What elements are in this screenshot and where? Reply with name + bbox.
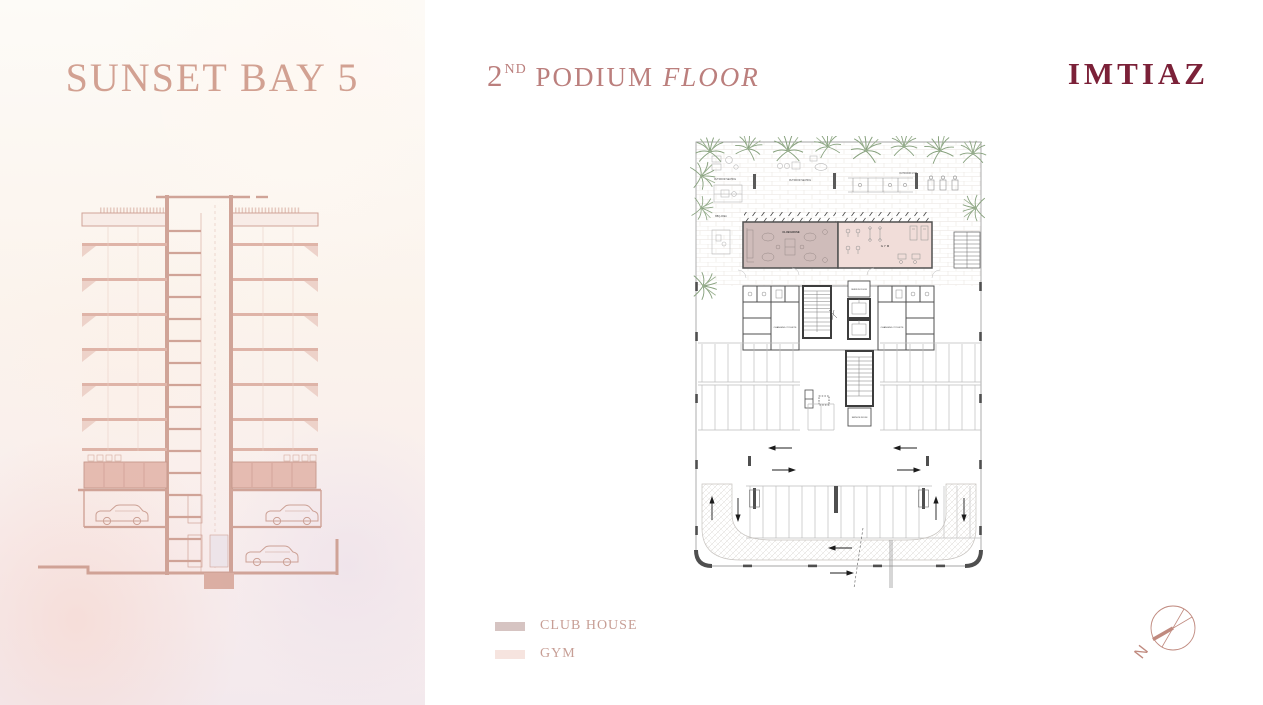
floor-plan: OUTDOOR SEATING OUTDOOR SEATING OUTDOOR … bbox=[688, 136, 992, 598]
project-title: SUNSET BAY 5 bbox=[0, 54, 425, 101]
left-sky-panel: SUNSET BAY 5 bbox=[0, 0, 425, 705]
podium-highlight-band bbox=[84, 455, 316, 488]
label-outdoor-seating-center: OUTDOOR SEATING bbox=[789, 179, 812, 182]
drive-aisle-arrows bbox=[768, 445, 921, 472]
club-house-room: CLUB HOUSE bbox=[743, 222, 838, 268]
slide: SUNSET BAY 5 bbox=[0, 0, 1263, 705]
legend-item-club-house: CLUB HOUSE bbox=[495, 617, 638, 635]
label-service-room-top: SERVICE ROOM bbox=[851, 289, 867, 291]
core-band: CHANGING / TOILETS CHANGING / TOILETS bbox=[743, 281, 934, 426]
pergola-hatch-clubhouse bbox=[744, 212, 836, 222]
floor-word-italic: FLOOR bbox=[663, 62, 760, 92]
brand-logo: IMTIAZ bbox=[1068, 56, 1209, 92]
club-house-swatch bbox=[495, 622, 525, 631]
gym-label: GYM bbox=[540, 646, 576, 662]
compass: N bbox=[1125, 596, 1215, 681]
car-left bbox=[96, 505, 148, 525]
legend: CLUB HOUSE GYM bbox=[495, 617, 638, 673]
ramp-band bbox=[702, 484, 976, 560]
floor-slabs bbox=[82, 226, 318, 451]
building-section bbox=[38, 195, 337, 589]
gym-swatch bbox=[495, 650, 525, 659]
club-house-label: CLUB HOUSE bbox=[540, 618, 638, 634]
label-changing-toilets-right: CHANGING / TOILETS bbox=[881, 326, 904, 329]
floor-heading: 2ND PODIUM FLOOR bbox=[487, 58, 760, 94]
gym-room: G Y M bbox=[838, 222, 932, 268]
parking-middle bbox=[698, 343, 981, 430]
label-outdoor-gym: OUTDOOR GYM bbox=[899, 173, 917, 175]
pergola-hatch-gym bbox=[840, 212, 932, 222]
floor-word: PODIUM bbox=[535, 62, 654, 92]
label-outdoor-seating-left: OUTDOOR SEATING bbox=[714, 178, 737, 181]
car-lower bbox=[246, 546, 298, 566]
label-service-room-bottom: SERVICE ROOM bbox=[852, 417, 868, 419]
legend-item-gym: GYM bbox=[495, 645, 638, 663]
label-club-house: CLUB HOUSE bbox=[782, 230, 799, 234]
car-right bbox=[266, 505, 318, 525]
label-bbq-area: BBQ AREA bbox=[715, 215, 727, 218]
external-stair bbox=[954, 232, 980, 268]
label-gym: G Y M bbox=[881, 244, 890, 248]
floor-number: 2 bbox=[487, 58, 505, 93]
floor-ordinal: ND bbox=[505, 62, 527, 77]
boundary-columns bbox=[695, 282, 982, 567]
compass-north-label: N bbox=[1131, 642, 1152, 662]
label-changing-toilets-left: CHANGING / TOILETS bbox=[774, 326, 797, 329]
building-section-drawing bbox=[38, 183, 378, 595]
